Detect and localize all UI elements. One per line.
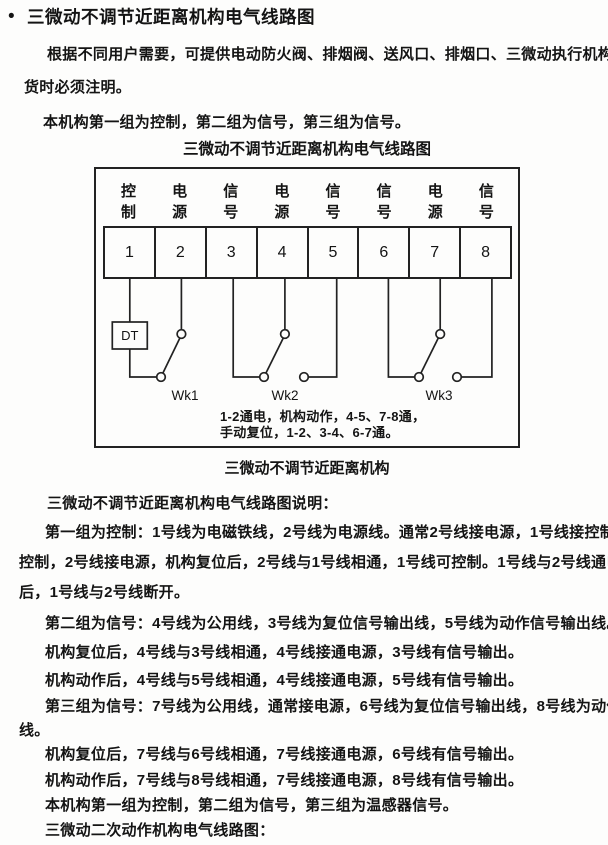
figure-caption: 三微动不调节近距离机构 [94,457,520,478]
contact-points [157,330,462,382]
description-line: 后，1号线与2号线断开。 [19,581,189,602]
description-line: 机构复位后，4号线与3号线相通，4号线接通电源，3号线有信号输出。 [45,641,523,662]
switch-label-wk1: Wk1 [172,388,199,403]
document-page: • 三微动不调节近距离机构电气线路图 根据不同用户需要，可提供电动防火阀、排烟阀… [0,0,608,845]
intro-line: 根据不同用户需要，可提供电动防火阀、排烟阀、送风口、排烟口、三微动执行机构，用户… [47,43,608,64]
description-line: 第三组为信号：7号线为公用线，通常接电源，6号线为复位信号输出线，8号线为动作信… [45,695,608,716]
switch-wk3 [388,279,492,377]
wiring-diagram: 控制 电源 信号 电源 信号 信号 电源 信号 1 2 3 4 5 6 7 8 [94,167,520,448]
description-line: 机构动作后，4号线与5号线相通，4号线接通电源，5号线有信号输出。 [45,669,523,690]
description-line: 线。 [19,719,50,740]
bullet-icon: • [8,7,15,26]
description-line: 第一组为控制：1号线为电磁铁线，2号线为电源线。通常2号线接电源，1号线接控制。… [45,521,608,542]
diagram-note-line: 1-2通电，机构动作，4-5、7-8通， [220,409,425,425]
intro-line: 本机构第一组为控制，第二组为信号，第三组为信号。 [43,111,410,132]
description-line: 本机构第一组为控制，第二组为信号，第三组为温感器信号。 [45,794,458,815]
figure-title: 三微动不调节近距离机构电气线路图 [94,137,520,159]
switch-label-wk2: Wk2 [272,388,299,403]
description-line: 机构动作后，7号线与8号线相通，7号线接通电源，8号线有信号输出。 [45,769,523,790]
description-line: 三微动二次动作机构电气线路图： [45,819,275,840]
switch-wk2 [233,279,337,377]
wiring-svg: DT Wk1 Wk2 Wk3 [96,169,518,442]
description-line: 控制，2号线接电源，机构复位后，2号线与1号线相通，1号线可控制。1号线与2号线… [19,551,608,572]
switch-label-wk3: Wk3 [426,388,453,403]
description-line: 三微动不调节近距离机构电气线路图说明： [47,492,338,513]
dt-label: DT [121,328,138,343]
intro-line: 货时必须注明。 [24,76,131,97]
page-title: 三微动不调节近距离机构电气线路图 [27,4,315,29]
description-line: 第二组为信号：4号线为公用线，3号线为复位信号输出线，5号线为动作信号输出线。 [45,612,608,633]
diagram-note-line: 手动复位，1-2、3-4、6-7通。 [220,425,399,441]
description-line: 机构复位后，7号线与6号线相通，7号线接通电源，6号线有信号输出。 [45,743,523,764]
